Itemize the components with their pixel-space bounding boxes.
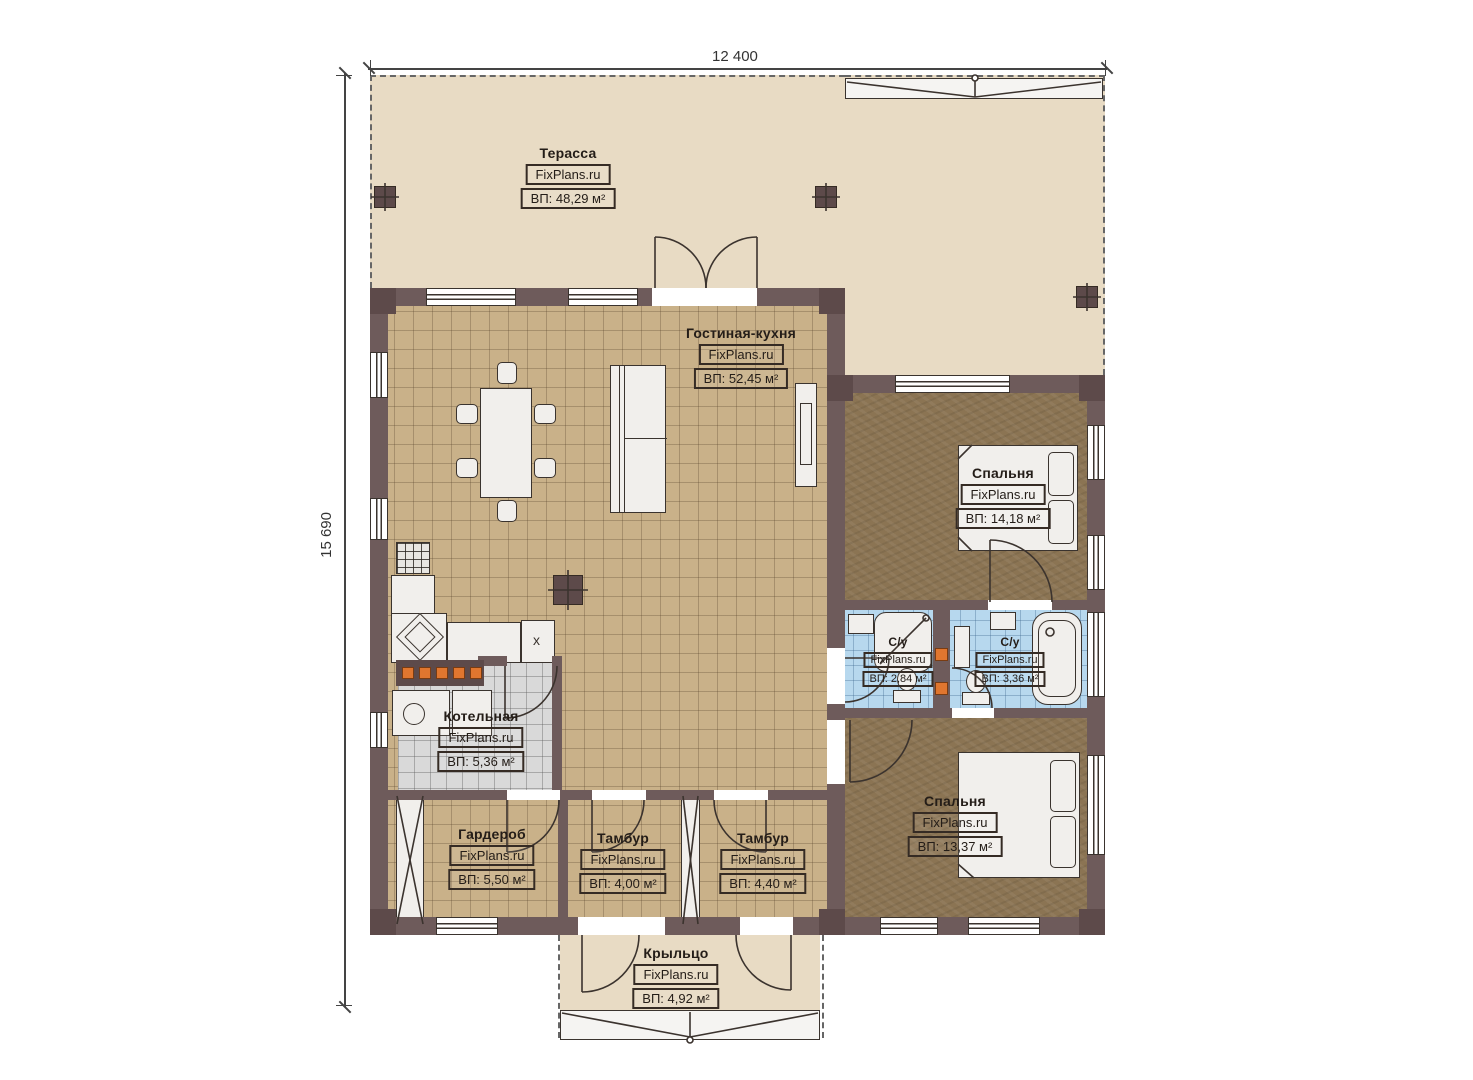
corner-pillar <box>370 288 396 314</box>
vent-marker <box>935 682 948 695</box>
window <box>895 375 1010 393</box>
window <box>1087 425 1105 480</box>
room-name: Спальня <box>956 465 1051 481</box>
dimension-line-top <box>368 68 1107 70</box>
cabinet-unit <box>610 365 666 513</box>
room-label-bathroom2: С/у FixPlans.ru ВП: 3,36 м² <box>974 635 1045 687</box>
room-name: Крыльцо <box>632 945 719 961</box>
terrace-area-right <box>845 75 1105 375</box>
window <box>968 917 1040 935</box>
room-area: ВП: 2,84 м² <box>862 671 933 687</box>
door-opening-bath2 <box>952 708 994 718</box>
pillow <box>1048 500 1074 544</box>
watermark: FixPlans.ru <box>449 845 534 866</box>
toilet-tank <box>962 692 990 705</box>
dimension-ext <box>370 60 371 76</box>
fridge-marker: x <box>533 632 540 648</box>
window <box>1087 612 1105 697</box>
room-label-terrace: Терасса FixPlans.ru ВП: 48,29 м² <box>521 145 616 209</box>
watermark: FixPlans.ru <box>698 344 783 365</box>
pillow <box>1048 452 1074 496</box>
room-label-bathroom1: С/у FixPlans.ru ВП: 2,84 м² <box>862 635 933 687</box>
corner-pillar <box>370 909 396 935</box>
terrace-steps <box>845 78 1103 99</box>
room-name: С/у <box>862 635 933 649</box>
room-area: ВП: 52,45 м² <box>694 368 789 389</box>
bathroom2-door-leaf <box>954 626 970 668</box>
room-label-living: Гостиная-кухня FixPlans.ru ВП: 52,45 м² <box>686 325 796 389</box>
door-opening-tambour2 <box>714 790 768 800</box>
door-opening-terrace <box>652 288 757 306</box>
watermark: FixPlans.ru <box>438 727 523 748</box>
room-name: Тамбур <box>579 830 666 846</box>
column <box>1076 286 1098 308</box>
corner-pillar <box>827 375 853 401</box>
watermark: FixPlans.ru <box>525 164 610 185</box>
watermark: FixPlans.ru <box>863 652 932 668</box>
dimension-ext <box>1105 60 1106 76</box>
window <box>436 917 498 935</box>
room-area: ВП: 3,36 м² <box>974 671 1045 687</box>
watermark: FixPlans.ru <box>580 849 665 870</box>
watermark: FixPlans.ru <box>960 484 1045 505</box>
chair <box>456 404 478 424</box>
chair <box>534 404 556 424</box>
column <box>374 186 396 208</box>
floor-plan: x <box>0 0 1473 1080</box>
room-area: ВП: 4,00 м² <box>579 873 666 894</box>
heater-marker <box>470 667 482 679</box>
window <box>880 917 938 935</box>
window <box>1087 535 1105 590</box>
stove <box>396 542 430 574</box>
room-area: ВП: 14,18 м² <box>956 508 1051 529</box>
room-label-bedroom2: Спальня FixPlans.ru ВП: 13,37 м² <box>908 793 1003 857</box>
wall-wardrobe-right <box>558 790 568 927</box>
dimension-width: 12 400 <box>712 48 758 65</box>
room-area: ВП: 13,37 м² <box>908 836 1003 857</box>
door-opening-bath1 <box>827 648 845 704</box>
wall-boiler-right <box>552 656 562 790</box>
room-name: С/у <box>974 635 1045 649</box>
door-opening-tambour1 <box>592 790 646 800</box>
watermark: FixPlans.ru <box>912 812 997 833</box>
door-opening-porch-left <box>578 917 665 935</box>
door-opening-bedroom2 <box>827 720 845 784</box>
window <box>370 352 388 398</box>
room-label-boiler: Котельная FixPlans.ru ВП: 5,36 м² <box>437 708 524 772</box>
chair <box>456 458 478 478</box>
porch-edge-right <box>820 935 824 1038</box>
chair <box>497 362 517 384</box>
dimension-height: 15 690 <box>318 512 335 558</box>
toilet-tank <box>893 690 921 703</box>
window <box>1087 755 1105 855</box>
column <box>553 575 583 605</box>
corner-pillar <box>1079 909 1105 935</box>
room-name: Спальня <box>908 793 1003 809</box>
room-name: Гостиная-кухня <box>686 325 796 341</box>
heater-marker <box>436 667 448 679</box>
window <box>370 498 388 540</box>
room-area: ВП: 4,92 м² <box>632 988 719 1009</box>
corner-pillar <box>1079 375 1105 401</box>
column <box>815 186 837 208</box>
window <box>426 288 516 306</box>
window <box>568 288 638 306</box>
room-label-wardrobe: Гардероб FixPlans.ru ВП: 5,50 м² <box>448 826 535 890</box>
dimension-ext <box>336 1005 352 1006</box>
vent-marker <box>935 648 948 661</box>
room-area: ВП: 5,36 м² <box>437 751 524 772</box>
porch-steps <box>560 1010 820 1040</box>
chair <box>534 458 556 478</box>
room-name: Котельная <box>437 708 524 724</box>
room-label-porch: Крыльцо FixPlans.ru ВП: 4,92 м² <box>632 945 719 1009</box>
room-label-tambour2: Тамбур FixPlans.ru ВП: 4,40 м² <box>719 830 806 894</box>
heater-marker <box>402 667 414 679</box>
dimension-line-left <box>344 73 346 1007</box>
heater-marker <box>419 667 431 679</box>
room-area: ВП: 4,40 м² <box>719 873 806 894</box>
door-opening-bedroom1 <box>988 600 1052 610</box>
room-name: Терасса <box>521 145 616 161</box>
room-label-bedroom1: Спальня FixPlans.ru ВП: 14,18 м² <box>956 465 1051 529</box>
chair <box>497 500 517 522</box>
room-area: ВП: 5,50 м² <box>448 869 535 890</box>
corner-pillar <box>819 909 845 935</box>
room-label-tambour1: Тамбур FixPlans.ru ВП: 4,00 м² <box>579 830 666 894</box>
bathroom1-sink <box>848 614 874 634</box>
room-area: ВП: 48,29 м² <box>521 188 616 209</box>
watermark: FixPlans.ru <box>720 849 805 870</box>
dining-table <box>480 388 532 498</box>
room-name: Гардероб <box>448 826 535 842</box>
door-opening-wardrobe <box>507 790 560 800</box>
tv-screen <box>800 403 812 465</box>
pillow <box>1050 816 1076 868</box>
kitchen-counter-left <box>391 575 435 615</box>
heater-marker <box>453 667 465 679</box>
closet-hatched <box>396 793 424 925</box>
corner-pillar <box>819 288 845 314</box>
shaft-hatched <box>681 793 700 925</box>
window <box>370 712 388 748</box>
pillow <box>1050 760 1076 812</box>
dimension-ext <box>336 75 352 76</box>
watermark: FixPlans.ru <box>975 652 1044 668</box>
door-opening-porch-right <box>740 917 793 935</box>
room-name: Тамбур <box>719 830 806 846</box>
bathroom2-sink <box>990 612 1016 630</box>
watermark: FixPlans.ru <box>633 964 718 985</box>
